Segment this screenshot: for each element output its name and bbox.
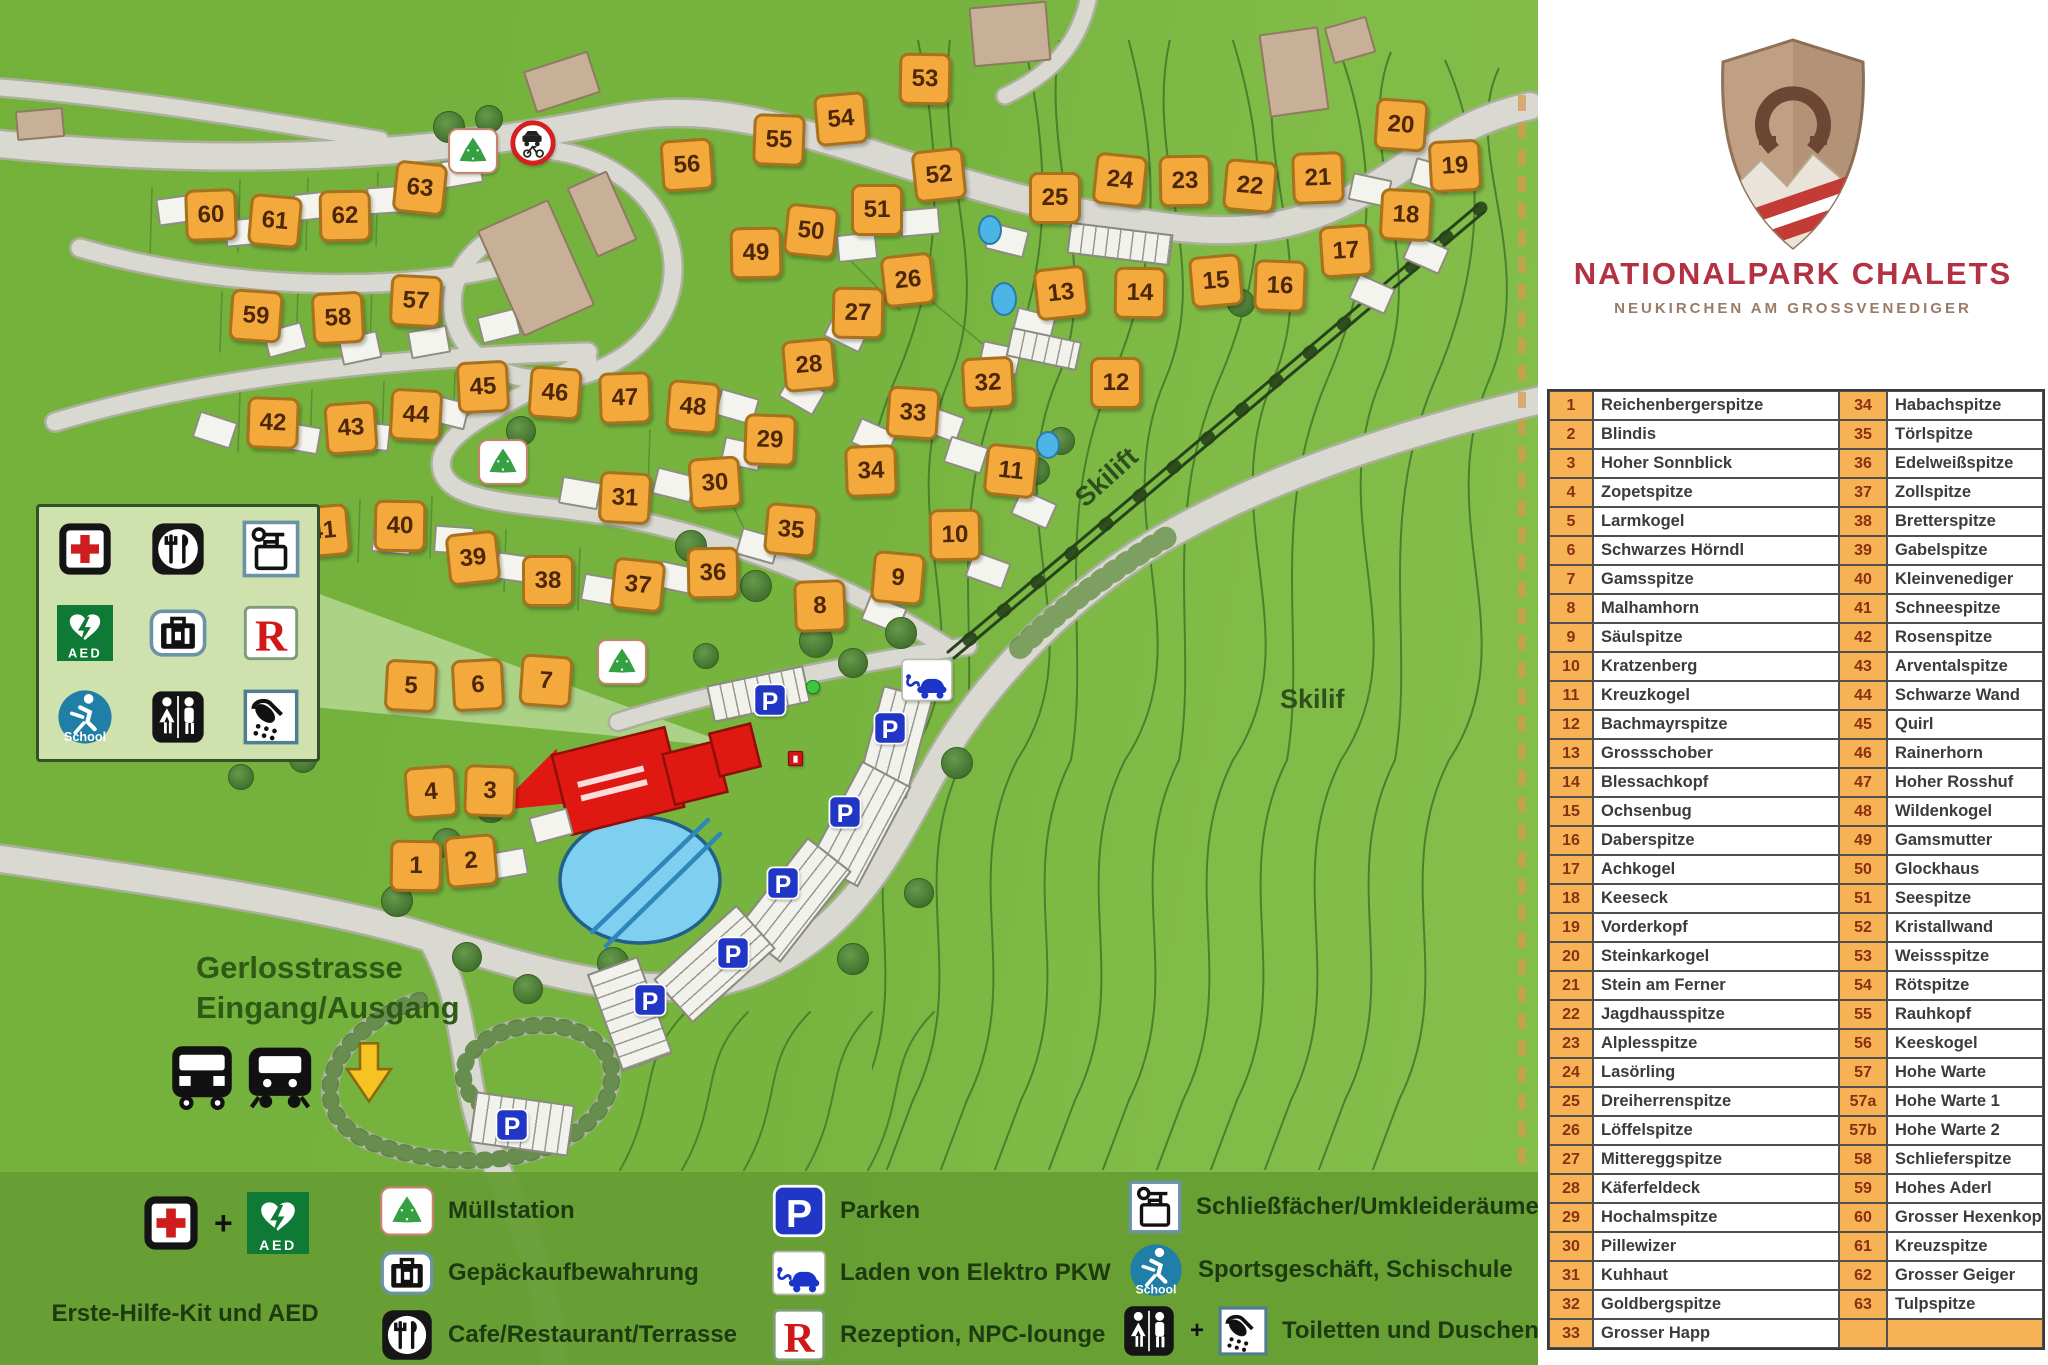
chalet-name-table: 1Reichenbergerspitze34Habachspitze2Blind… xyxy=(1547,389,2045,1350)
chalet-number: 49 xyxy=(1839,826,1887,855)
chalet-number: 52 xyxy=(1839,913,1887,942)
chalet-name: Zopetspitze xyxy=(1593,478,1839,507)
chalet-name: Lasörling xyxy=(1593,1058,1839,1087)
chalet-name: Larmkogel xyxy=(1593,507,1839,536)
svg-text:P: P xyxy=(642,989,659,1016)
chalet-marker-22: 22 xyxy=(1222,158,1278,214)
wc-icon xyxy=(150,689,206,745)
legend-ev: Laden von Elektro PKW xyxy=(772,1246,1111,1300)
chalet-number: 39 xyxy=(1839,536,1887,565)
chalet-number: 60 xyxy=(1839,1203,1887,1232)
chalet-name: Kleinvenediger xyxy=(1887,565,2043,594)
chalet-number: 14 xyxy=(1549,768,1593,797)
chalet-marker-51: 51 xyxy=(851,184,903,236)
chalet-name: Keeskogel xyxy=(1887,1029,2043,1058)
building xyxy=(969,1,1052,68)
chalet-marker-25: 25 xyxy=(1029,172,1081,224)
svg-text:P: P xyxy=(504,1114,521,1141)
svg-text:P: P xyxy=(775,872,792,899)
chalet-number: 30 xyxy=(1549,1232,1593,1261)
chalet-name: Achkogel xyxy=(1593,855,1839,884)
chalet-name: Weissspitze xyxy=(1887,942,2043,971)
chalet-name: Blindis xyxy=(1593,420,1839,449)
chalet-marker-37: 37 xyxy=(609,556,666,613)
chalet-name: Bachmayrspitze xyxy=(1593,710,1839,739)
chalet-marker-3: 3 xyxy=(463,764,517,818)
chalet-name: Käferfeldeck xyxy=(1593,1174,1839,1203)
chalet-number: 42 xyxy=(1839,623,1887,652)
luggage-icon xyxy=(380,1246,434,1300)
chalet-name: Steinkarkogel xyxy=(1593,942,1839,971)
parking-icon: P xyxy=(633,983,667,1017)
tree xyxy=(693,643,719,669)
ev-charging-icon xyxy=(772,1246,826,1300)
chalet-number: 23 xyxy=(1549,1029,1593,1058)
legend-cafe: Cafe/Restaurant/Terrasse xyxy=(380,1308,737,1362)
parking-icon: P xyxy=(716,936,750,970)
chalet-marker-16: 16 xyxy=(1253,259,1307,313)
chalet-marker-27: 27 xyxy=(832,287,885,340)
chalet-marker-62: 62 xyxy=(319,190,372,243)
first-aid-icon xyxy=(142,1194,200,1252)
brand-shield-logo xyxy=(1693,28,1893,258)
chalet-marker-2: 2 xyxy=(443,833,499,889)
parking-icon: P xyxy=(873,711,907,745)
parking-icon: P xyxy=(495,1108,529,1142)
chalet-name: Rauhkopf xyxy=(1887,1000,2043,1029)
chalet-marker-57: 57 xyxy=(389,274,444,329)
chalet-marker-5: 5 xyxy=(384,659,439,714)
luggage-icon xyxy=(149,604,207,662)
tree xyxy=(904,878,934,908)
chalet-number: 58 xyxy=(1839,1145,1887,1174)
chalet-name: Edelweißspitze xyxy=(1887,449,2043,478)
site-map: PPPPPPP 12345678910111213141516171819202… xyxy=(0,0,1538,1365)
chalet-marker-63: 63 xyxy=(391,159,448,216)
chalet-number: 51 xyxy=(1839,884,1887,913)
chalet-marker-1: 1 xyxy=(390,840,443,893)
chalet-number xyxy=(1839,1319,1887,1348)
chalet-number: 26 xyxy=(1549,1116,1593,1145)
building xyxy=(1258,26,1329,118)
building xyxy=(15,107,65,141)
chalet-number: 40 xyxy=(1839,565,1887,594)
svg-text:P: P xyxy=(786,1192,812,1236)
chalet-marker-17: 17 xyxy=(1318,223,1374,279)
skilift-area-label: Skilif xyxy=(1280,684,1345,715)
chalet-number: 33 xyxy=(1549,1319,1593,1348)
chalet-marker-42: 42 xyxy=(246,396,300,450)
chalet-number: 15 xyxy=(1549,797,1593,826)
recycle-station-icon xyxy=(478,437,528,487)
chalet-marker-8: 8 xyxy=(793,579,847,633)
chalet-marker-29: 29 xyxy=(743,413,797,467)
chalet-number: 46 xyxy=(1839,739,1887,768)
legend-rezeption: R Rezeption, NPC-lounge xyxy=(772,1308,1105,1362)
chalet-name: Bretterspitze xyxy=(1887,507,2043,536)
reception-icon: R xyxy=(243,605,299,661)
chalet-number: 10 xyxy=(1549,652,1593,681)
transport-icons xyxy=(168,1042,400,1115)
tree xyxy=(740,570,772,602)
chalet-number: 57b xyxy=(1839,1116,1887,1145)
chalet-marker-39: 39 xyxy=(444,529,501,586)
street-entrance-label: Gerlosstrasse Eingang/Ausgang xyxy=(196,948,460,1028)
parking-icon: P xyxy=(766,866,800,900)
chalet-name: Gamsmutter xyxy=(1887,826,2043,855)
chalet-name: Grosser Geiger xyxy=(1887,1261,2043,1290)
chalet-marker-14: 14 xyxy=(1114,267,1167,320)
chalet-number: 9 xyxy=(1549,623,1593,652)
chalet-name: Habachspitze xyxy=(1887,391,2043,420)
chalet-number: 45 xyxy=(1839,710,1887,739)
chalet-marker-31: 31 xyxy=(598,471,653,526)
plus-sign: + xyxy=(214,1207,233,1239)
entrance-label: Eingang/Ausgang xyxy=(196,988,460,1028)
chalet-name xyxy=(1887,1319,2043,1348)
chalet-name: Dreiherrenspitze xyxy=(1593,1087,1839,1116)
chalet-marker-26: 26 xyxy=(879,251,936,308)
locker-icon xyxy=(1128,1180,1182,1234)
chalet-marker-53: 53 xyxy=(899,53,952,106)
chalet-marker-24: 24 xyxy=(1091,151,1148,208)
chalet-number: 18 xyxy=(1549,884,1593,913)
chalet-number: 12 xyxy=(1549,710,1593,739)
restaurant-icon xyxy=(150,521,206,577)
chalet-name: Stein am Ferner xyxy=(1593,971,1839,1000)
chalet-number: 54 xyxy=(1839,971,1887,1000)
svg-text:AED: AED xyxy=(68,646,102,661)
chalet-number: 19 xyxy=(1549,913,1593,942)
chalet-number: 53 xyxy=(1839,942,1887,971)
chalet-name: Hohe Warte 1 xyxy=(1887,1087,2043,1116)
tree xyxy=(941,747,973,779)
chalet-number: 8 xyxy=(1549,594,1593,623)
chalet-name: Zollspitze xyxy=(1887,478,2043,507)
chalet-name: Hoher Rosshuf xyxy=(1887,768,2043,797)
chalet-marker-52: 52 xyxy=(910,146,967,203)
chalet-number: 43 xyxy=(1839,652,1887,681)
svg-text:R: R xyxy=(255,611,288,661)
tree xyxy=(513,974,543,1004)
tree xyxy=(838,648,868,678)
chalet-number: 27 xyxy=(1549,1145,1593,1174)
chalet-name: Kristallwand xyxy=(1887,913,2043,942)
svg-text:P: P xyxy=(762,689,779,716)
chalet-name: Kuhhaut xyxy=(1593,1261,1839,1290)
chalet-marker-7: 7 xyxy=(518,653,574,709)
chalet-name: Grosser Hexenkopf xyxy=(1887,1203,2043,1232)
chalet-number: 34 xyxy=(1839,391,1887,420)
chalet-marker-47: 47 xyxy=(598,371,652,425)
chalet-marker-48: 48 xyxy=(665,379,721,435)
chalet-name: Schneespitze xyxy=(1887,594,2043,623)
chalet-name: Schwarzes Hörndl xyxy=(1593,536,1839,565)
chalet-number: 21 xyxy=(1549,971,1593,1000)
chalet-marker-46: 46 xyxy=(527,365,583,421)
chalet-marker-56: 56 xyxy=(659,137,715,193)
plus-sign: + xyxy=(1190,1319,1204,1343)
chalet-number: 20 xyxy=(1549,942,1593,971)
legend-strip: + AED Erste-Hilfe-Kit und AED Müllstatio… xyxy=(0,1172,1538,1365)
chalet-marker-4: 4 xyxy=(403,764,459,820)
chalet-marker-44: 44 xyxy=(389,388,444,443)
chalet-marker-18: 18 xyxy=(1379,188,1434,243)
chalet-name: Reichenbergerspitze xyxy=(1593,391,1839,420)
reception-icon: R xyxy=(772,1308,826,1362)
ev-charging-icon xyxy=(901,654,953,706)
chalet-marker-10: 10 xyxy=(929,509,982,562)
chalet-marker-33: 33 xyxy=(885,385,941,441)
aed-icon: AED xyxy=(247,1192,309,1254)
svg-text:School: School xyxy=(64,730,106,744)
entrance-arrow-icon xyxy=(338,1042,400,1109)
chalet-number: 37 xyxy=(1839,478,1887,507)
chalet-name: Rainerhorn xyxy=(1887,739,2043,768)
chalet-name: Gabelspitze xyxy=(1887,536,2043,565)
svg-text:P: P xyxy=(725,942,742,969)
recycle-station-icon xyxy=(597,637,647,687)
brand-title: NATIONALPARK CHALETS xyxy=(1538,256,2048,292)
svg-text:R: R xyxy=(784,1315,816,1362)
pond xyxy=(991,282,1017,316)
tree xyxy=(837,943,869,975)
chalet-marker-35: 35 xyxy=(763,502,819,558)
map-boundary-dashes xyxy=(1518,95,1526,1175)
chalet-name: Hohes Aderl xyxy=(1887,1174,2043,1203)
chalet-number: 4 xyxy=(1549,478,1593,507)
chalet-name: Quirl xyxy=(1887,710,2043,739)
chalet-number: 44 xyxy=(1839,681,1887,710)
chalet-marker-21: 21 xyxy=(1291,151,1345,205)
mini-roundabout xyxy=(805,679,821,695)
legend-parken: P Parken xyxy=(772,1184,920,1238)
chalet-name: Kratzenberg xyxy=(1593,652,1839,681)
chalet-number: 48 xyxy=(1839,797,1887,826)
chalet-name: Grosser Happ xyxy=(1593,1319,1839,1348)
chalet-marker-58: 58 xyxy=(311,291,366,346)
parking-icon: P xyxy=(828,795,862,829)
chalet-name: Rosenspitze xyxy=(1887,623,2043,652)
chalet-marker-28: 28 xyxy=(781,337,837,393)
resort-map-page: PPPPPPP 12345678910111213141516171819202… xyxy=(0,0,2048,1365)
locker-icon xyxy=(242,520,300,578)
chalet-marker-36: 36 xyxy=(687,547,740,600)
chalet-number: 57a xyxy=(1839,1087,1887,1116)
parking-icon: P xyxy=(753,683,787,717)
chalet-number: 17 xyxy=(1549,855,1593,884)
street-name: Gerlosstrasse xyxy=(196,948,460,988)
chalet-name: Seespitze xyxy=(1887,884,2043,913)
info-panel: NATIONALPARK CHALETS NEUKIRCHEN AM GROSS… xyxy=(1538,0,2048,1365)
chalet-marker-43: 43 xyxy=(323,400,379,456)
first-aid-icon xyxy=(57,521,113,577)
brand-subtitle: NEUKIRCHEN AM GROSSVENEDIGER xyxy=(1538,300,2048,317)
chalet-name: Schlieferspitze xyxy=(1887,1145,2043,1174)
chalet-number: 36 xyxy=(1839,449,1887,478)
chalet-number: 3 xyxy=(1549,449,1593,478)
restaurant-icon xyxy=(380,1308,434,1362)
chalet-name: Blessachkopf xyxy=(1593,768,1839,797)
chalet-marker-13: 13 xyxy=(1032,264,1089,321)
chalet-marker-9: 9 xyxy=(870,550,926,606)
chalet-number: 11 xyxy=(1549,681,1593,710)
chalet-name: Jagdhausspitze xyxy=(1593,1000,1839,1029)
map-legend-box: AED R School xyxy=(36,504,320,762)
chalet-name: Keeseck xyxy=(1593,884,1839,913)
chalet-name: Tulpspitze xyxy=(1887,1290,2043,1319)
chalet-number: 24 xyxy=(1549,1058,1593,1087)
legend-first-aid-label: Erste-Hilfe-Kit und AED xyxy=(30,1300,340,1328)
chalet-name: Rötspitze xyxy=(1887,971,2043,1000)
svg-text:P: P xyxy=(882,717,899,744)
chalet-number: 63 xyxy=(1839,1290,1887,1319)
chalet-number: 32 xyxy=(1549,1290,1593,1319)
bus-icon xyxy=(168,1042,236,1115)
chalet-name: Vorderkopf xyxy=(1593,913,1839,942)
chalet-number: 7 xyxy=(1549,565,1593,594)
chalet-marker-54: 54 xyxy=(813,91,869,147)
svg-text:School: School xyxy=(1136,1282,1177,1296)
chalet-marker-61: 61 xyxy=(247,193,303,249)
chalet-name: Löffelspitze xyxy=(1593,1116,1839,1145)
chalet-marker-50: 50 xyxy=(782,202,839,259)
chalet-name: Ochsenbug xyxy=(1593,797,1839,826)
legend-muellstation: Müllstation xyxy=(380,1184,575,1238)
wc-icon xyxy=(1122,1304,1176,1358)
legend-first-aid: + AED xyxy=(142,1192,309,1254)
legend-gepaeck: Gepäckaufbewahrung xyxy=(380,1246,699,1300)
chalet-name: Säulspitze xyxy=(1593,623,1839,652)
parking-icon: P xyxy=(772,1184,826,1238)
chalet-name: Gamsspitze xyxy=(1593,565,1839,594)
chalet-name: Malhamhorn xyxy=(1593,594,1839,623)
chalet-number: 6 xyxy=(1549,536,1593,565)
svg-text:AED: AED xyxy=(259,1238,297,1254)
no-vehicles-sign-icon xyxy=(510,120,556,166)
chalet-number: 61 xyxy=(1839,1232,1887,1261)
aed-icon: AED xyxy=(57,605,113,661)
chalet-number: 41 xyxy=(1839,594,1887,623)
chalet-marker-15: 15 xyxy=(1188,253,1244,309)
chalet-number: 5 xyxy=(1549,507,1593,536)
chalet-marker-11: 11 xyxy=(982,442,1039,499)
chalet-name: Pillewizer xyxy=(1593,1232,1839,1261)
chalet-number: 31 xyxy=(1549,1261,1593,1290)
pond xyxy=(978,215,1002,245)
house xyxy=(899,206,941,237)
chalet-marker-49: 49 xyxy=(730,227,783,280)
tree xyxy=(228,764,254,790)
chalet-name: Daberspitze xyxy=(1593,826,1839,855)
chalet-name: Arventalspitze xyxy=(1887,652,2043,681)
pond xyxy=(1036,431,1060,459)
chalet-number: 28 xyxy=(1549,1174,1593,1203)
chalet-number: 59 xyxy=(1839,1174,1887,1203)
chalet-number: 22 xyxy=(1549,1000,1593,1029)
chalet-number: 16 xyxy=(1549,826,1593,855)
chalet-name: Hochalmspitze xyxy=(1593,1203,1839,1232)
chalet-name: Törlspitze xyxy=(1887,420,2043,449)
train-icon xyxy=(246,1042,314,1115)
chalet-name: Grossschober xyxy=(1593,739,1839,768)
chalet-number: 29 xyxy=(1549,1203,1593,1232)
chalet-number: 55 xyxy=(1839,1000,1887,1029)
chalet-number: 50 xyxy=(1839,855,1887,884)
chalet-name: Hoher Sonnblick xyxy=(1593,449,1839,478)
chalet-marker-23: 23 xyxy=(1159,155,1212,208)
chalet-name: Goldbergspitze xyxy=(1593,1290,1839,1319)
hut xyxy=(787,750,804,767)
chalet-number: 57 xyxy=(1839,1058,1887,1087)
chalet-marker-45: 45 xyxy=(456,360,511,415)
recycle-icon xyxy=(380,1184,434,1238)
chalet-name: Kreuzkogel xyxy=(1593,681,1839,710)
chalet-name: Hohe Warte xyxy=(1887,1058,2043,1087)
chalet-name: Kreuzspitze xyxy=(1887,1232,2043,1261)
chalet-name: Schwarze Wand xyxy=(1887,681,2043,710)
chalet-marker-59: 59 xyxy=(228,288,284,344)
chalet-marker-34: 34 xyxy=(844,444,898,498)
recycle-station-icon xyxy=(448,126,498,176)
shower-icon xyxy=(243,689,299,745)
chalet-number: 13 xyxy=(1549,739,1593,768)
chalet-marker-12: 12 xyxy=(1090,357,1142,409)
chalet-marker-19: 19 xyxy=(1428,139,1483,194)
legend-sport: School Sportsgeschäft, Schischule xyxy=(1128,1242,1513,1298)
chalet-name: Alplesspitze xyxy=(1593,1029,1839,1058)
svg-text:P: P xyxy=(837,801,854,828)
chalet-marker-38: 38 xyxy=(522,555,574,607)
chalet-name: Mittereggspitze xyxy=(1593,1145,1839,1174)
tree xyxy=(885,617,917,649)
shower-icon xyxy=(1218,1306,1268,1356)
chalet-name: Hohe Warte 2 xyxy=(1887,1116,2043,1145)
ski-school-icon: School xyxy=(1128,1242,1184,1298)
chalet-marker-32: 32 xyxy=(961,356,1016,411)
chalet-marker-30: 30 xyxy=(687,455,743,511)
chalet-number: 1 xyxy=(1549,391,1593,420)
ski-school-icon: School xyxy=(56,688,114,746)
chalet-number: 2 xyxy=(1549,420,1593,449)
chalet-number: 56 xyxy=(1839,1029,1887,1058)
chalet-marker-20: 20 xyxy=(1373,97,1429,153)
chalet-name: Wildenkogel xyxy=(1887,797,2043,826)
legend-schliessfaecher: Schließfächer/Umkleideräume xyxy=(1128,1180,1538,1234)
chalet-number: 47 xyxy=(1839,768,1887,797)
chalet-number: 35 xyxy=(1839,420,1887,449)
chalet-marker-60: 60 xyxy=(184,188,238,242)
chalet-marker-55: 55 xyxy=(752,113,806,167)
chalet-name: Glockhaus xyxy=(1887,855,2043,884)
chalet-number: 38 xyxy=(1839,507,1887,536)
chalet-number: 62 xyxy=(1839,1261,1887,1290)
chalet-marker-40: 40 xyxy=(374,500,427,553)
chalet-marker-6: 6 xyxy=(451,658,506,713)
chalet-number: 25 xyxy=(1549,1087,1593,1116)
legend-toiletten: + Toiletten und Duschen xyxy=(1122,1304,1538,1358)
